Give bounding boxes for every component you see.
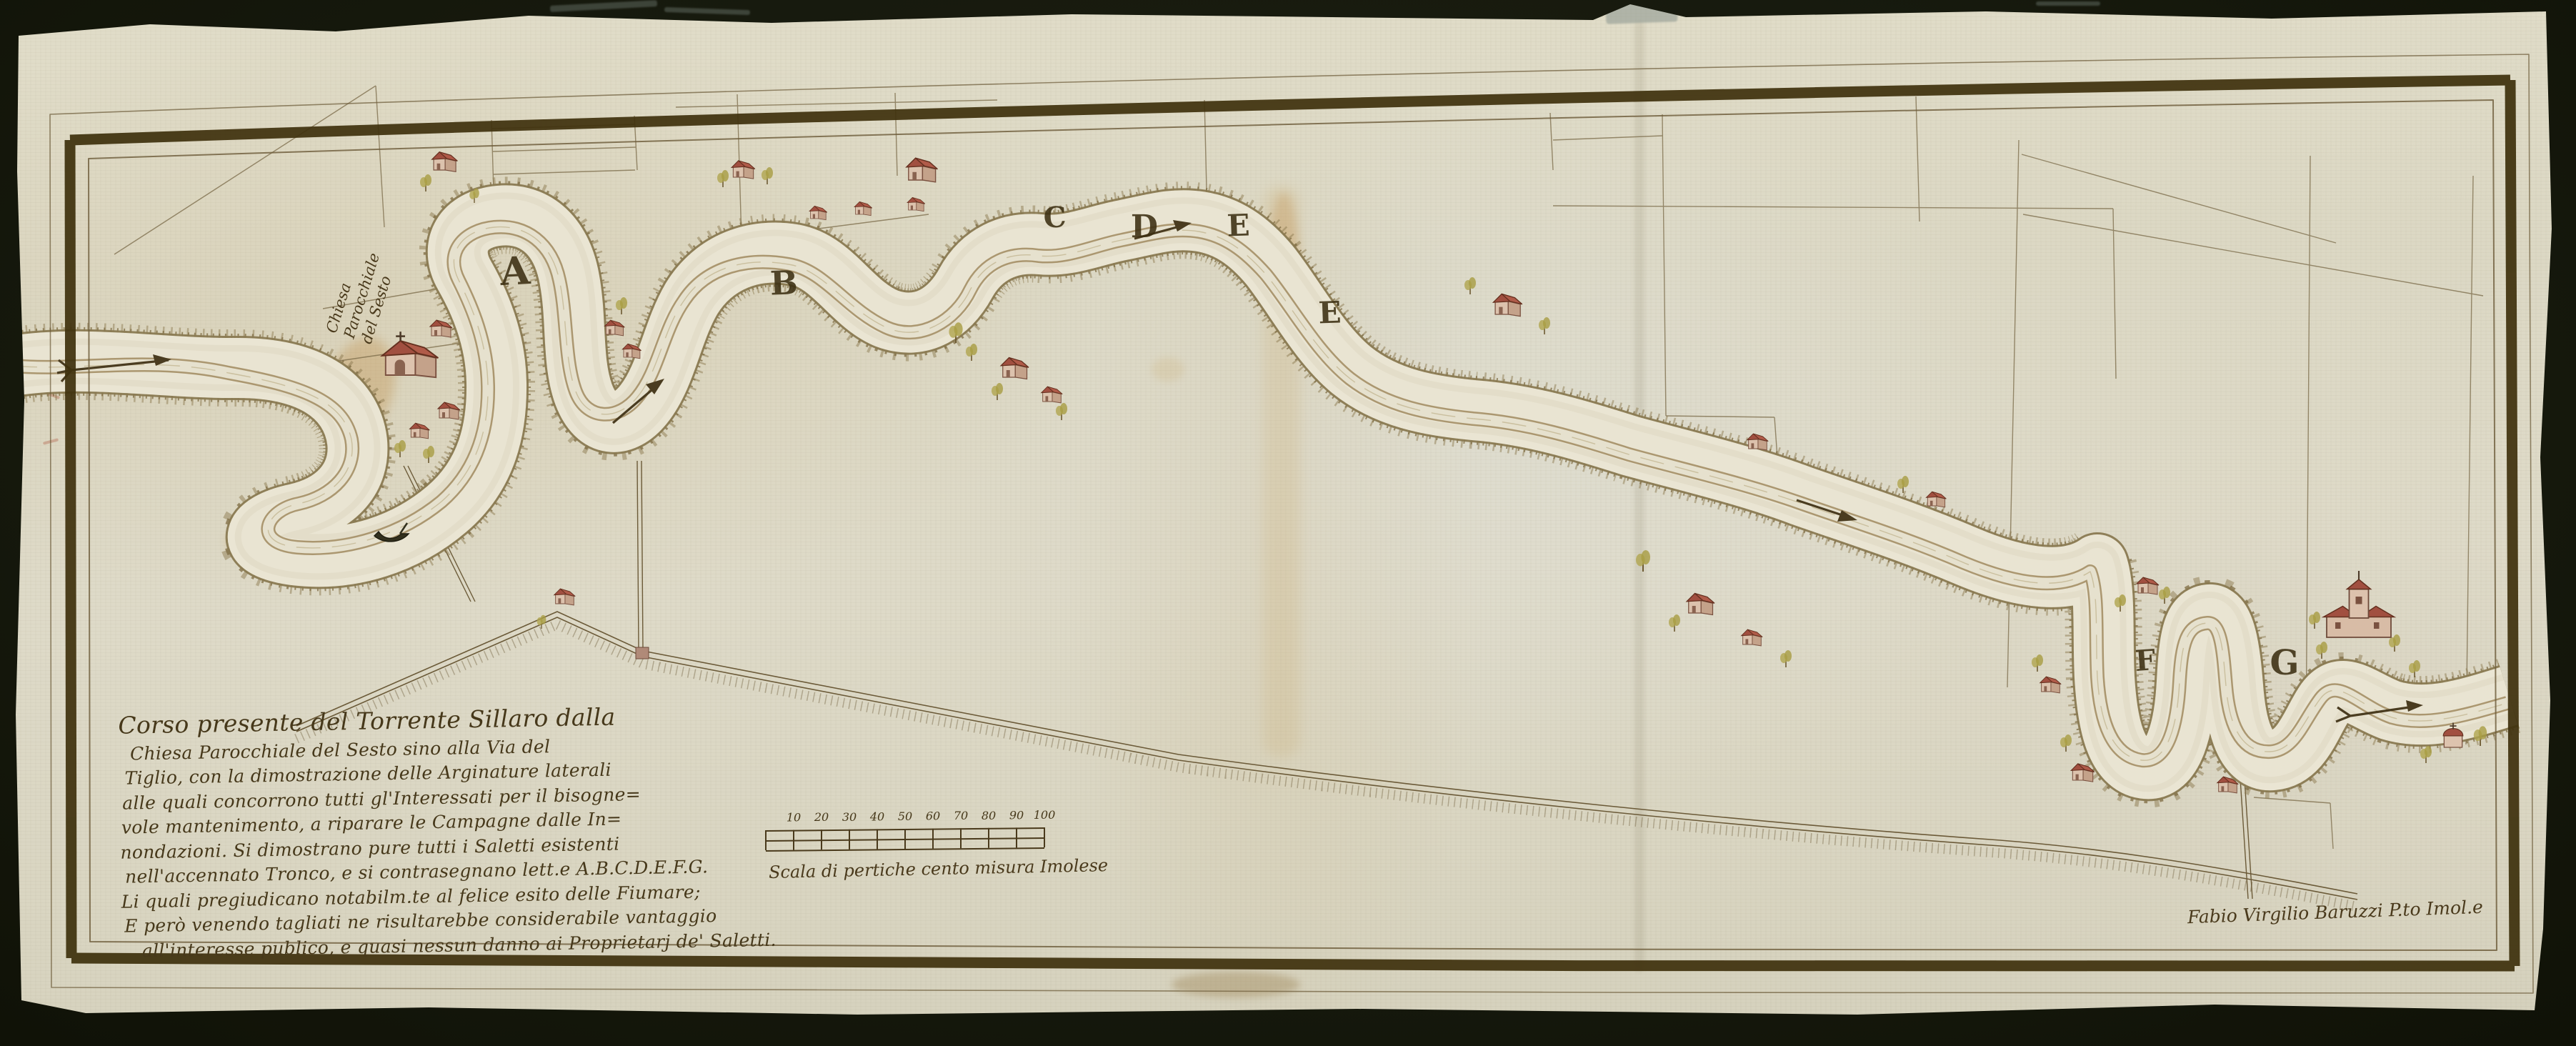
title-block: Corso presente del Torrente Sillaro dall… — [118, 697, 837, 963]
farmhouse — [854, 201, 872, 215]
farmhouse — [2071, 764, 2095, 782]
table-scuff-mark — [2036, 1, 2100, 6]
scale-tick-label: 80 — [982, 809, 996, 822]
scale-tick-label: 90 — [1009, 808, 1024, 822]
scale-tick-label: 40 — [869, 810, 884, 823]
farmhouse — [432, 152, 458, 172]
table-scuff-mark — [550, 0, 657, 12]
farmhouse — [907, 197, 925, 211]
scale-tick-label: 30 — [842, 810, 857, 824]
farmhouse — [1687, 594, 1714, 615]
farmhouse — [1001, 358, 1029, 379]
saletto-marker-F: F — [2134, 643, 2157, 678]
saletto-marker-A: A — [498, 247, 531, 294]
roadside-house — [554, 589, 575, 605]
farmhouse — [1494, 294, 1522, 316]
scale-tick-label: 100 — [1034, 808, 1056, 822]
saletto-marker-B: B — [769, 263, 799, 302]
farmhouse — [410, 423, 430, 439]
farmhouse — [907, 158, 937, 182]
scale-tick-label: 70 — [954, 809, 968, 822]
flow-arrows — [57, 220, 2423, 722]
farmhouse — [438, 402, 460, 419]
parish-church — [382, 332, 438, 377]
scale-tick-label: 50 — [898, 810, 912, 823]
saletto-marker-G: G — [2270, 643, 2300, 683]
saletto-marker-E: E — [1227, 207, 1251, 243]
farmhouse — [809, 206, 827, 219]
road-culvert — [636, 647, 649, 659]
farmhouse — [1927, 492, 1947, 507]
map-sheet: 102030405060708090100 ABCDEEFG — [0, 0, 2576, 1046]
farmhouse — [2040, 677, 2061, 693]
farmhouse — [732, 161, 755, 179]
table-scuff-mark — [664, 7, 750, 15]
scanned-map-page: 102030405060708090100 ABCDEEFG — [0, 0, 2576, 1046]
farmhouse — [1747, 434, 1768, 450]
farmhouse — [1742, 629, 1762, 646]
villa-with-tower — [2324, 571, 2395, 637]
saletto-marker-C: C — [1043, 200, 1067, 234]
scale-tick-label: 60 — [926, 810, 940, 823]
saletto-marker-E: E — [1318, 294, 1342, 330]
saletto-marker-D: D — [1131, 209, 1158, 245]
farmhouse — [1042, 387, 1062, 403]
farmhouse — [2137, 577, 2159, 594]
